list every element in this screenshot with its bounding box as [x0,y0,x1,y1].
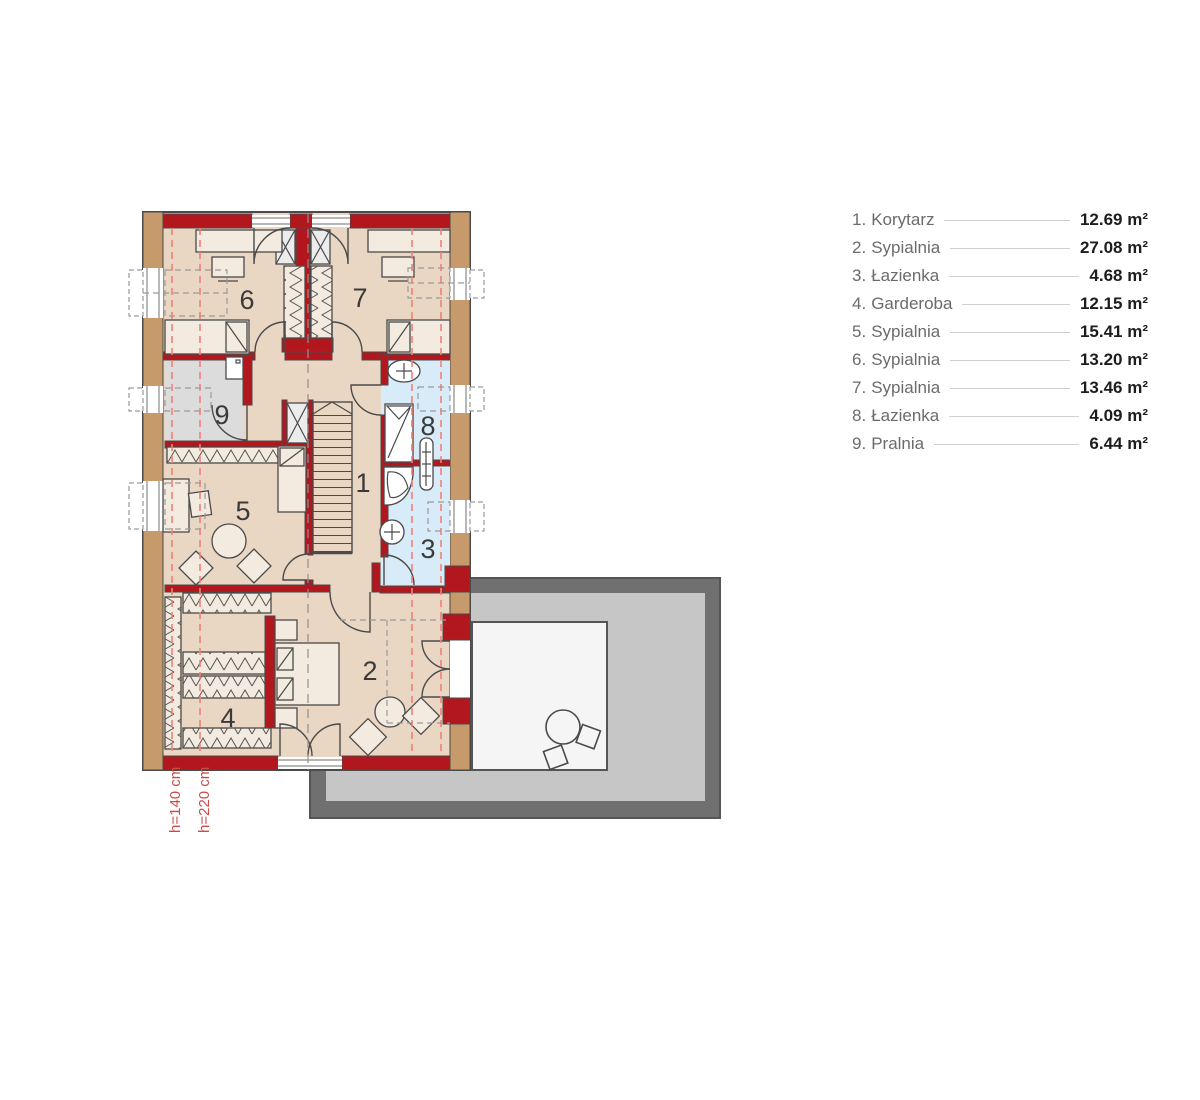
legend-connector [950,360,1070,361]
legend-row: 8.Łazienka 4.09 m² [852,402,1148,430]
room-label-6: 6 [239,285,254,315]
shaft-box [287,403,308,443]
legend-label: 7.Sypialnia [852,378,940,398]
legend-area: 13.20 m² [1080,350,1148,370]
radiator [420,438,433,490]
bed-room5 [278,446,306,512]
legend-connector [950,388,1070,389]
legend-label: 1.Korytarz [852,210,934,230]
wardrobe-room4-top [183,593,271,613]
shower [385,404,413,462]
legend-label: 3.Łazienka [852,266,939,286]
legend-connector [934,444,1079,445]
shaft-box [311,230,330,264]
floor-plan-page: 1 2 3 4 5 6 7 8 9 h=140 cm h=220 cm 1.Ko… [0,0,1200,1100]
room-label-1: 1 [355,468,370,498]
legend-area: 4.68 m² [1089,266,1148,286]
stairs [313,402,352,553]
legend-label: 9.Pralnia [852,434,924,454]
balcony-table [546,710,580,744]
legend-row: 5.Sypialnia 15.41 m² [852,318,1148,346]
room-label-3: 3 [420,534,435,564]
desk-room5 [163,479,189,532]
wardrobe-center-right [311,266,332,338]
floor-plan-drawing: 1 2 3 4 5 6 7 8 9 h=140 cm h=220 cm [0,0,1200,1100]
room-label-2: 2 [362,656,377,686]
wardrobe-room4-left [165,597,181,749]
table-room5 [212,524,246,558]
legend-area: 4.09 m² [1089,406,1148,426]
room-label-8: 8 [420,411,435,441]
wardrobe-room4-mid [183,652,265,674]
legend-area: 27.08 m² [1080,238,1148,258]
height-label-140: h=140 cm [167,767,184,833]
legend-connector [949,276,1079,277]
room-label-5: 5 [235,496,250,526]
bed-room6 [165,320,249,354]
legend-area: 12.69 m² [1080,210,1148,230]
legend-connector [962,304,1069,305]
legend-row: 2.Sypialnia 27.08 m² [852,234,1148,262]
legend-connector [950,332,1070,333]
legend-label: 4.Garderoba [852,294,952,314]
height-label-220: h=220 cm [196,767,213,833]
room-legend: 1.Korytarz 12.69 m² 2.Sypialnia 27.08 m²… [852,206,1148,458]
legend-area: 15.41 m² [1080,322,1148,342]
legend-row: 9.Pralnia 6.44 m² [852,430,1148,458]
legend-row: 7.Sypialnia 13.46 m² [852,374,1148,402]
legend-area: 6.44 m² [1089,434,1148,454]
legend-label: 8.Łazienka [852,406,939,426]
legend-label: 2.Sypialnia [852,238,940,258]
legend-area: 12.15 m² [1080,294,1148,314]
washing-machine [226,357,243,379]
legend-area: 13.46 m² [1080,378,1148,398]
room-label-4: 4 [220,703,235,733]
legend-connector [950,248,1070,249]
legend-connector [949,416,1079,417]
legend-row: 1.Korytarz 12.69 m² [852,206,1148,234]
legend-label: 5.Sypialnia [852,322,940,342]
wardrobe-room5 [167,447,278,463]
wardrobe-room4-mid2 [183,676,265,698]
balcony [472,622,607,770]
room-label-7: 7 [352,283,367,313]
legend-connector [944,220,1069,221]
legend-row: 6.Sypialnia 13.20 m² [852,346,1148,374]
legend-row: 3.Łazienka 4.68 m² [852,262,1148,290]
washbasin-room8 [388,360,420,382]
wardrobe-center-left [284,266,305,338]
washbasin-room3 [380,520,404,544]
room-label-9: 9 [214,400,229,430]
legend-row: 4.Garderoba 12.15 m² [852,290,1148,318]
legend-label: 6.Sypialnia [852,350,940,370]
height-labels: h=140 cm h=220 cm [167,767,213,833]
